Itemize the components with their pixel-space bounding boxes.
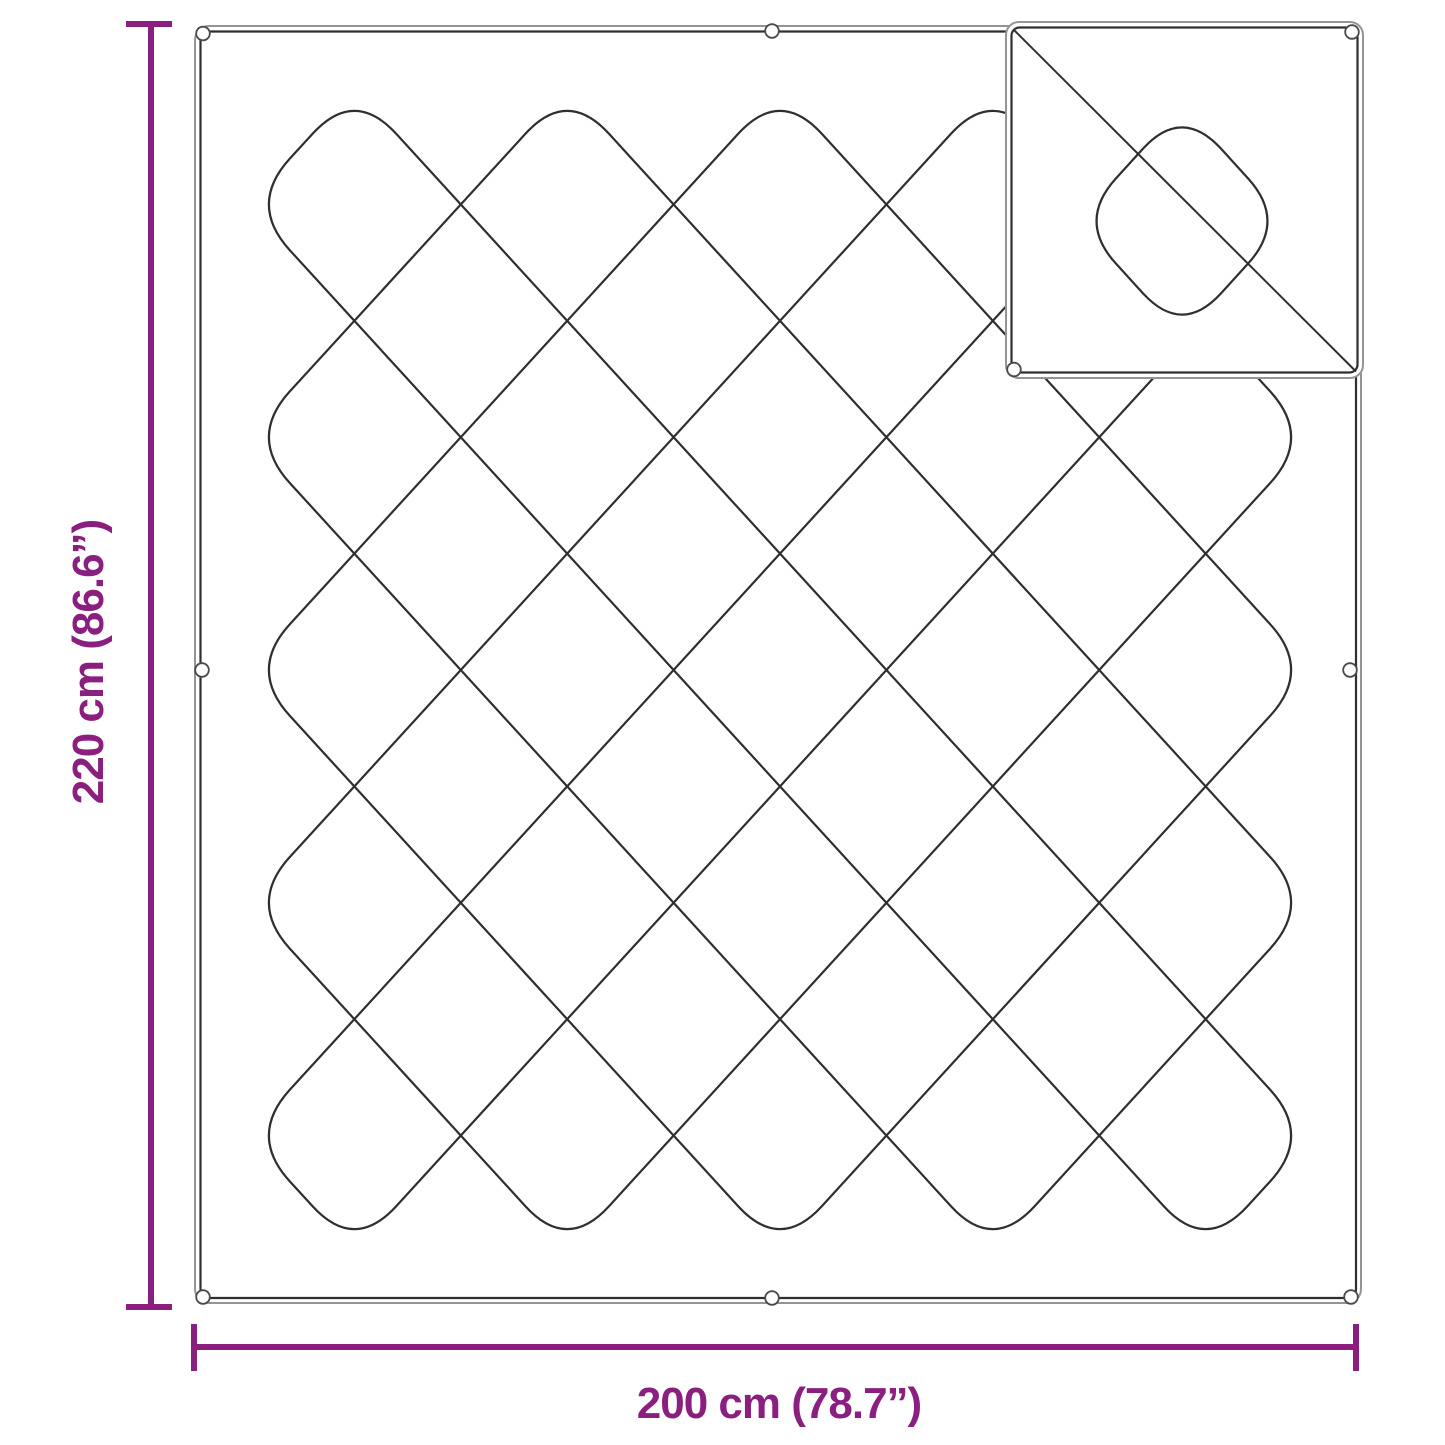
grommet-top-left <box>196 27 210 41</box>
grommet-top-middle <box>765 24 779 38</box>
blanket-dimension-drawing: 220 cm (86.6”) 200 cm (78.7”) <box>0 0 1445 1445</box>
height-dimension-cap-bottom <box>126 1304 172 1310</box>
width-dimension-cap-left <box>191 1324 197 1371</box>
width-dimension-line <box>194 1344 1356 1350</box>
grommet-mid-left <box>195 663 209 677</box>
grommet-bottom-left <box>196 1290 210 1304</box>
width-dimension-cap-right <box>1353 1324 1359 1371</box>
height-dimension-cap-top <box>126 21 172 27</box>
grommet-bottom-right <box>1344 1290 1358 1304</box>
height-dimension-line <box>148 24 154 1307</box>
grommet-flap-top-right <box>1345 25 1359 39</box>
height-dimension: 220 cm (86.6”) <box>64 21 172 1310</box>
width-dimension-label: 200 cm (78.7”) <box>637 1379 921 1428</box>
grommet-bottom-middle <box>765 1291 779 1305</box>
height-dimension-label: 220 cm (86.6”) <box>64 520 113 804</box>
grommet-flap-bottom-left <box>1007 363 1021 377</box>
folded-corner-flap <box>1006 22 1363 378</box>
grommet-mid-right <box>1343 663 1357 677</box>
product-dimension-diagram: 220 cm (86.6”) 200 cm (78.7”) <box>0 0 1445 1445</box>
width-dimension: 200 cm (78.7”) <box>191 1324 1359 1428</box>
